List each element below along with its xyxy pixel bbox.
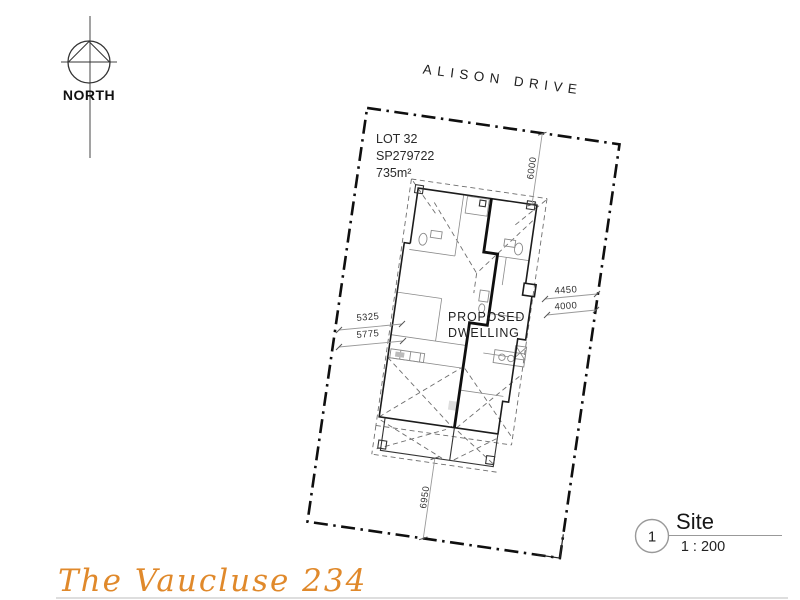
dim-text-5325: 5325 [356,311,380,324]
entry-porch-post [479,200,486,207]
laundry-tub [498,354,505,361]
brand-signature: The Vaucluse 234 [58,563,367,599]
sheet-scale: 1 : 200 [681,539,725,555]
dim-text-6000: 6000 [525,156,539,180]
site-plan-sheet: NORTH ALISON DRIVE [0,0,800,600]
porch-post [486,456,495,465]
laundry-tub [507,355,514,362]
dim-rear-setback: 6950 [414,455,439,541]
north-label: NORTH [63,87,115,103]
site-plan-drawing: NORTH ALISON DRIVE [0,0,800,600]
dim-text-4000: 4000 [554,300,577,313]
lot-area: 735m² [376,166,411,180]
dwelling-label-line2: DWELLING [448,326,520,340]
party-wall-extension [450,428,455,461]
basin-fixture [504,239,516,247]
sheet-number: 1 [648,529,656,546]
lot-number: LOT 32 [376,132,418,146]
basin-fixture [430,230,442,238]
wc-fixture [479,290,489,302]
street-name-label: ALISON DRIVE [422,62,583,98]
dim-text-5775: 5775 [356,328,380,341]
lot-info: LOT 32 SP279722 735m² [376,132,434,180]
title-block: 1 Site 1 : 200 [636,509,783,555]
lot-plan: SP279722 [376,149,434,163]
dwelling-label-line1: PROPOSED [448,310,525,324]
sheet-title: Site [676,509,714,534]
dim-side-left-lower: 5775 [336,328,406,350]
wall-pier [523,283,537,297]
north-indicator: NORTH [61,16,117,158]
garage-roof-x-lines [379,357,519,435]
dim-side-right-lower: 4000 [544,300,599,318]
north-arrow-triangle [69,42,110,63]
toilet-fixture [418,233,428,246]
dim-line [339,341,403,347]
cooktop [395,352,405,358]
dim-text-6950: 6950 [418,485,432,509]
dim-text-4450: 4450 [554,284,577,297]
dim-side-right-upper: 4450 [542,284,600,302]
